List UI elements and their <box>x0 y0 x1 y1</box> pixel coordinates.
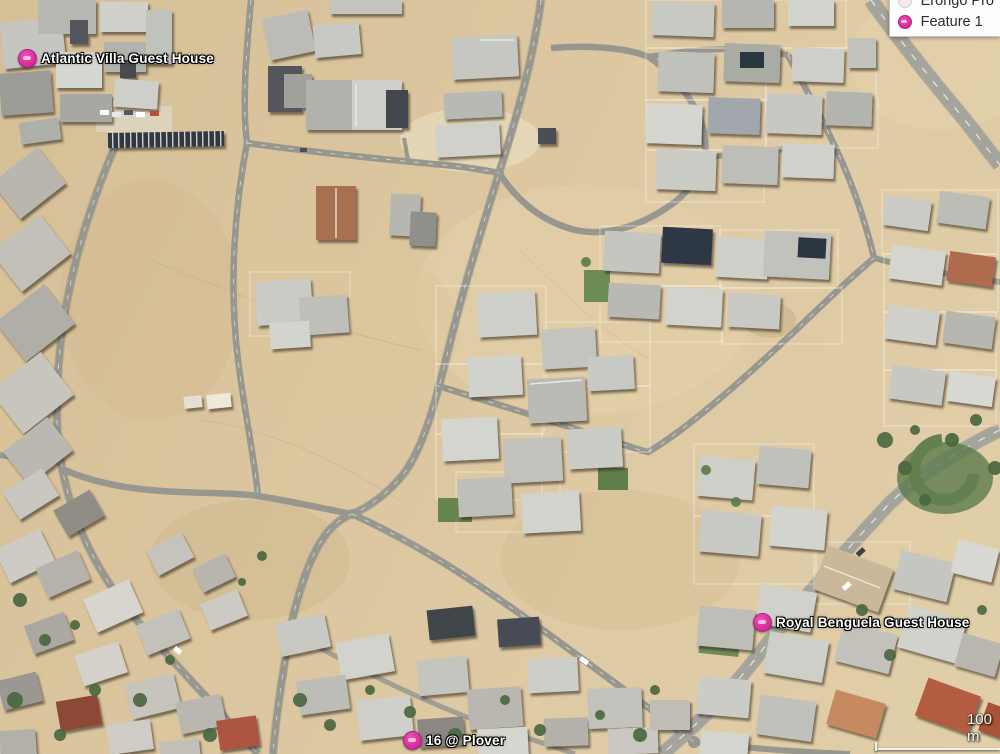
layer-swatch-icon <box>898 0 912 8</box>
placemark-label: 16 @ Plover <box>426 733 505 748</box>
placemark-label: Royal Benguela Guest House <box>776 615 970 630</box>
scale-label: 100 m <box>967 711 992 745</box>
placemark-atlantic-villa-guest-house[interactable]: Atlantic Villa Guest House <box>18 49 214 68</box>
placemark-pin-icon <box>403 731 422 750</box>
placemark-dot-icon <box>898 15 912 29</box>
legend-item-label: Feature 1 <box>921 14 983 30</box>
legend-panel: Erongo Pro Feature 1 <box>889 0 1000 37</box>
satellite-imagery <box>0 0 1000 754</box>
satellite-map-view[interactable]: Atlantic Villa Guest House Royal Benguel… <box>0 0 1000 754</box>
scale-line <box>875 748 1000 750</box>
legend-item-erongo[interactable]: Erongo Pro <box>896 0 994 11</box>
legend-item-feature-1[interactable]: Feature 1 <box>896 11 994 32</box>
legend-item-label: Erongo Pro <box>921 0 994 9</box>
placemark-16-at-plover[interactable]: 16 @ Plover <box>403 731 505 750</box>
placemark-pin-icon <box>18 49 37 68</box>
placemark-pin-icon <box>753 613 772 632</box>
placemark-label: Atlantic Villa Guest House <box>41 51 214 66</box>
placemark-royal-benguela-guest-house[interactable]: Royal Benguela Guest House <box>753 613 970 632</box>
